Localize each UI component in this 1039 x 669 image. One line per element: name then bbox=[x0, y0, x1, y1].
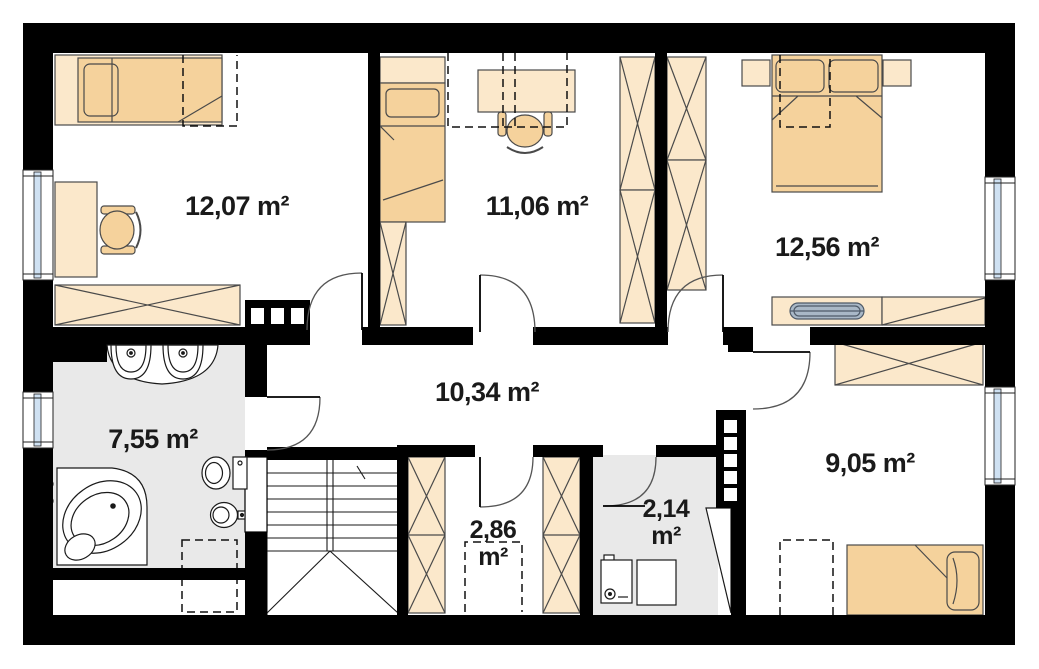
wall-bottom bbox=[23, 615, 1015, 645]
office-chair-icon bbox=[100, 206, 141, 254]
wall-right bbox=[985, 280, 1015, 387]
door-arc bbox=[480, 457, 533, 507]
wall-right bbox=[985, 23, 1015, 177]
window bbox=[985, 177, 1015, 280]
double-bed-icon bbox=[772, 55, 882, 192]
wall-top bbox=[23, 23, 1015, 53]
floor-plan: 12,07 m² 11,06 m² 12,56 m² 10,34 m² 7,55… bbox=[0, 0, 1039, 669]
desk-icon bbox=[478, 70, 575, 112]
single-bed-icon bbox=[380, 83, 445, 222]
door-arc bbox=[267, 397, 320, 450]
washing-machine-icon bbox=[601, 555, 632, 603]
angled-cabinet-icon bbox=[882, 297, 985, 325]
room-area-label: m² bbox=[651, 522, 681, 550]
roof-window-dashed bbox=[780, 540, 833, 615]
window bbox=[23, 170, 53, 280]
wall-left bbox=[23, 448, 53, 645]
bathtub-icon bbox=[49, 466, 156, 568]
room-bedroom-top-left-furniture bbox=[55, 55, 240, 325]
room-area-label: 9,05 m² bbox=[825, 448, 915, 478]
room-bedroom-bottom-furniture bbox=[835, 342, 983, 615]
wardrobe-icon bbox=[620, 57, 655, 323]
pipe-dot bbox=[43, 496, 54, 507]
wardrobe-icon bbox=[835, 342, 983, 385]
room-area-label: 12,07 m² bbox=[185, 191, 290, 221]
chimney bbox=[245, 300, 310, 345]
window bbox=[985, 387, 1015, 485]
wall-left bbox=[23, 23, 53, 170]
shelf bbox=[380, 57, 445, 83]
room-area-label: 7,55 m² bbox=[108, 424, 198, 454]
room-area-label: 11,06 m² bbox=[486, 191, 589, 221]
toilet-icon bbox=[202, 457, 247, 489]
single-bed-icon bbox=[78, 58, 222, 122]
nightstand-icon bbox=[883, 60, 911, 86]
room-bedroom-top-right-furniture bbox=[667, 55, 985, 325]
wardrobe-icon bbox=[380, 222, 406, 325]
chimney bbox=[716, 410, 746, 508]
wall-right bbox=[985, 485, 1015, 645]
wardrobe-icon bbox=[543, 457, 580, 613]
wall-niche bbox=[245, 457, 267, 532]
door-arc bbox=[307, 273, 362, 330]
room-area-label: 2,14 bbox=[643, 495, 690, 523]
wall-partition bbox=[368, 53, 380, 345]
appliance-icon bbox=[637, 560, 676, 605]
window bbox=[23, 392, 53, 448]
floor-plan-svg: 12,07 m² 11,06 m² 12,56 m² 10,34 m² 7,55… bbox=[0, 0, 1039, 669]
desk-icon bbox=[55, 182, 97, 277]
wall-left bbox=[23, 280, 53, 392]
wardrobe-icon bbox=[408, 457, 445, 613]
wall-partition bbox=[655, 53, 667, 345]
radiator-icon bbox=[790, 303, 864, 319]
room-area-label: 10,34 m² bbox=[435, 377, 540, 407]
door-arc bbox=[753, 352, 810, 409]
room-area-label: 2,86 bbox=[470, 516, 517, 544]
wardrobe-icon bbox=[55, 285, 240, 325]
nightstand-icon bbox=[742, 60, 770, 86]
office-chair-icon bbox=[498, 112, 552, 153]
room-area-label: 12,56 m² bbox=[775, 232, 880, 262]
pipe-dot bbox=[43, 479, 54, 490]
room-area-label: m² bbox=[478, 543, 508, 571]
wardrobe-icon bbox=[667, 57, 706, 290]
door-arc bbox=[480, 275, 535, 332]
single-bed-icon bbox=[847, 545, 983, 615]
stairs-icon bbox=[267, 460, 398, 615]
